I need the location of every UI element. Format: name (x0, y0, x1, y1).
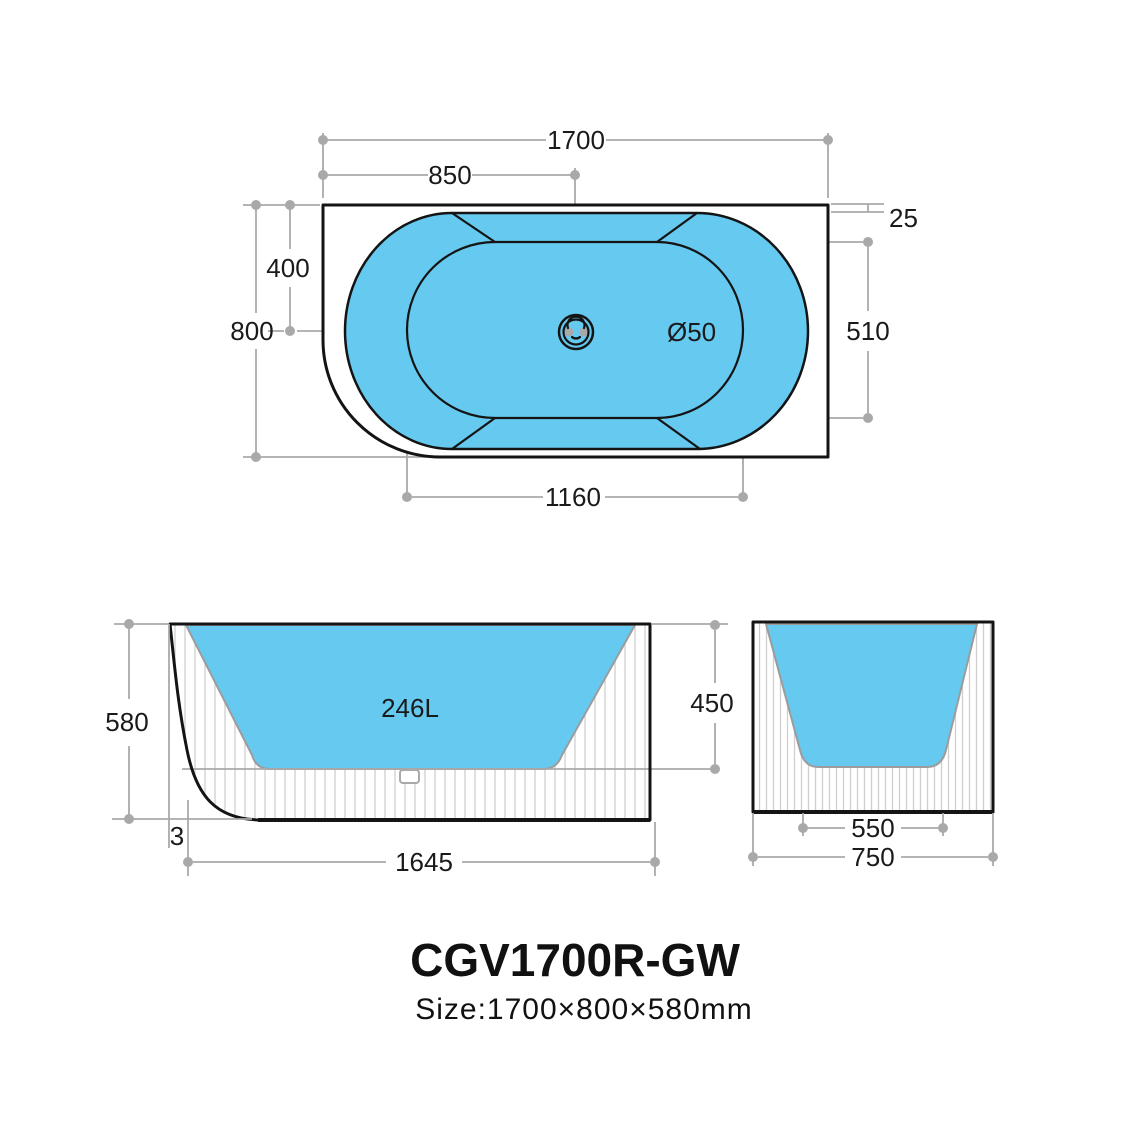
dim-overall-length-label: 1700 (547, 125, 605, 155)
drawing-sheet: 1700 850 25 400 800 Ø50 510 1160 (0, 0, 1123, 1123)
dim-width-label: 800 (230, 316, 273, 346)
dim-base-offset-label: 3 (170, 821, 184, 851)
dim-half-width-label: 400 (266, 253, 309, 283)
dim-side-width-label: 750 (851, 842, 894, 872)
dim-inner-floor-length-label: 1160 (545, 482, 601, 512)
title-block: CGV1700R-GW Size:1700×800×580mm (410, 934, 753, 1026)
dim-floor-width-label: 550 (851, 813, 894, 843)
front-drain-fitting (400, 770, 419, 783)
dim-half-length-label: 850 (428, 160, 471, 190)
bathtub-technical-drawing: 1700 850 25 400 800 Ø50 510 1160 (0, 0, 1123, 1123)
dim-rim-offset-label: 25 (889, 203, 918, 233)
front-view: 580 3 1645 450 246L (105, 619, 733, 877)
top-view: 1700 850 25 400 800 Ø50 510 1160 (230, 125, 918, 512)
dim-drain-diameter-label: Ø50 (667, 317, 716, 347)
capacity-label: 246L (381, 693, 439, 723)
size-subtitle: Size:1700×800×580mm (415, 993, 753, 1026)
dim-inner-width-label: 510 (846, 316, 889, 346)
dim-depth-label: 450 (690, 688, 733, 718)
dim-height-label: 580 (105, 707, 148, 737)
dim-base-length-label: 1645 (395, 847, 453, 877)
model-title: CGV1700R-GW (410, 934, 740, 986)
side-view: 550 750 (748, 622, 998, 872)
tub-rim-water (345, 213, 808, 449)
